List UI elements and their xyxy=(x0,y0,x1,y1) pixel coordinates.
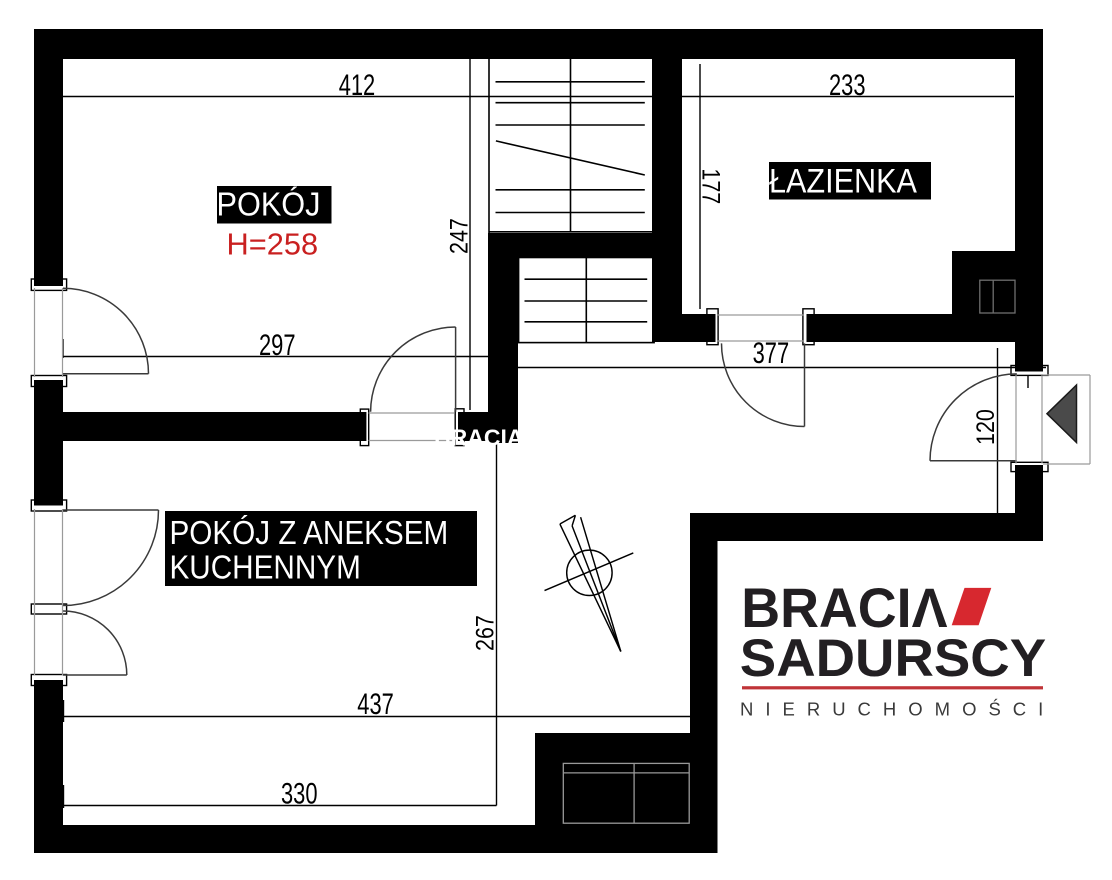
svg-text:297: 297 xyxy=(259,328,296,362)
svg-text:H=258: H=258 xyxy=(227,227,319,262)
svg-text:233: 233 xyxy=(829,68,866,102)
svg-text:POKÓJ Z ANEKSEM: POKÓJ Z ANEKSEM xyxy=(170,515,449,552)
svg-text:NIERUCHOMOŚCI: NIERUCHOMOŚCI xyxy=(740,698,1055,719)
svg-text:BRACIA: BRACIA xyxy=(434,425,523,451)
svg-text:POKÓJ: POKÓJ xyxy=(217,185,321,222)
svg-text:247: 247 xyxy=(445,218,473,254)
svg-text:330: 330 xyxy=(281,776,318,810)
svg-text:267: 267 xyxy=(471,615,499,651)
svg-text:ŁAZIENKA: ŁAZIENKA xyxy=(769,162,917,200)
svg-text:437: 437 xyxy=(357,687,394,721)
svg-text:KUCHENNYM: KUCHENNYM xyxy=(170,549,361,586)
svg-text:412: 412 xyxy=(339,68,376,102)
svg-text:177: 177 xyxy=(697,168,725,204)
svg-text:120: 120 xyxy=(971,409,999,445)
svg-text:SADURSCY: SADURSCY xyxy=(740,629,1046,688)
svg-text:377: 377 xyxy=(753,336,790,370)
